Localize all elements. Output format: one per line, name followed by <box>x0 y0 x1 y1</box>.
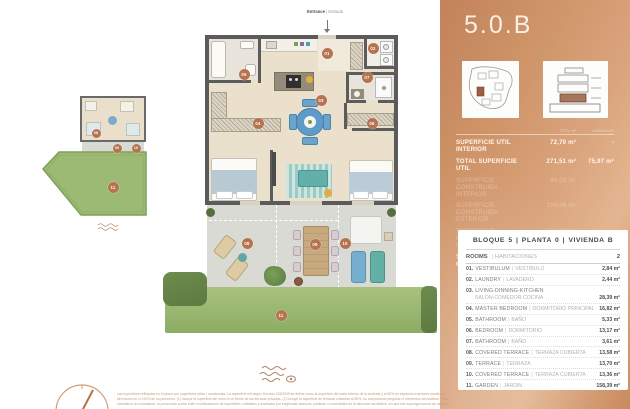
sun-lounger <box>351 251 366 283</box>
room-marker-06: 06 <box>367 118 378 129</box>
rooms-card: BLOQUE 5 | PLANTA 0 | VIVIENDA B ROOMS |… <box>458 230 628 390</box>
wall-segment <box>364 39 367 69</box>
surface-total: 271,51 m² <box>526 158 576 172</box>
dining-chair <box>323 114 331 130</box>
room-row: 05. BATHROOM | BAÑO 5,33 m² <box>466 315 620 326</box>
surface-label: SUPERFICIE CONSTRUIDA INTERIOR <box>456 177 526 198</box>
surface-row: SUPERFICIE UTIL INTERIOR 72,70 m² - <box>456 139 614 153</box>
rooms-count: 2 <box>617 254 620 260</box>
room-row: 03. LIVING-DINNING-KITCHEN <box>466 286 620 294</box>
surface-table-divider <box>456 134 614 135</box>
pillow <box>216 191 233 199</box>
mini-room-marker-11: 11 <box>108 182 119 193</box>
room-marker-11: 11 <box>276 310 287 321</box>
entrance-door-gap <box>318 35 336 39</box>
card-divider <box>466 249 620 250</box>
surface-vivienda: - <box>576 177 614 198</box>
outdoor-chair <box>293 262 301 272</box>
surface-label: SUPERFICIE UTIL INTERIOR <box>456 139 526 153</box>
shrub <box>206 208 215 217</box>
room-row: 11. GARDEN | JARDIN 158,39 m² <box>466 380 620 390</box>
wall-segment <box>378 100 394 103</box>
outdoor-chair <box>331 230 339 240</box>
room-row: 09. TERRACE | TERRAZA 13,70 m² <box>466 358 620 369</box>
outdoor-chair <box>331 262 339 272</box>
room-marker-04: 04 <box>253 118 264 129</box>
outdoor-chair <box>331 246 339 256</box>
mini-furniture <box>120 101 134 112</box>
entrance-arrow-icon <box>324 29 330 33</box>
rooms-header-en: ROOMS <box>466 254 488 260</box>
surface-table-header: TOTAL M² VIVIENDA M² <box>456 129 614 133</box>
pillow <box>236 191 253 199</box>
room-marker-09: 09 <box>310 239 321 250</box>
pouf <box>324 189 332 197</box>
cooktop-burner <box>289 78 292 81</box>
bathroom-sink <box>354 91 360 97</box>
surface-col1-header: TOTAL M² <box>526 129 576 133</box>
shower-drain-icon <box>382 86 386 90</box>
tv-unit <box>272 152 276 186</box>
room-row: 02. LAUNDRY | LAVADERO 2,44 m² <box>466 275 620 286</box>
mini-table <box>108 116 117 125</box>
info-panel: 5.0.B <box>440 0 630 409</box>
surface-row: SUPERFICIE CONSTRUIDA EXTERIOR 100,06 m²… <box>456 202 614 223</box>
side-table <box>238 253 247 262</box>
mini-room-marker-09: 09 <box>113 144 122 153</box>
entrance-arrow-shaft <box>327 20 328 29</box>
table-centerpiece <box>308 120 312 124</box>
side-table <box>384 232 393 241</box>
entrance-label-es: Entrada <box>328 9 343 14</box>
section-diagram-thumbnail <box>543 61 608 118</box>
washer-drum-icon <box>383 44 389 50</box>
master-wardrobe <box>211 118 281 132</box>
surface-col2-header: VIVIENDA M² <box>576 129 614 133</box>
plant <box>264 266 286 286</box>
fruit-bowl <box>306 76 313 83</box>
cooktop-burner <box>295 78 298 81</box>
room-marker-08: 08 <box>242 238 253 249</box>
surface-label: TOTAL SUPERFICIE UTIL <box>456 158 526 172</box>
surface-total: 100,06 m² <box>526 202 576 223</box>
unit-location-title: BLOQUE 5 | PLANTA 0 | VIVIENDA B <box>466 237 620 244</box>
sofa <box>298 170 328 187</box>
room-row: 08. COVERED TERRACE | TERRAZA CUBIERTA 1… <box>466 347 620 358</box>
room-row: 07. BATHROOM | BAÑO 3,61 m² <box>466 337 620 348</box>
room-marker-05: 05 <box>239 69 250 80</box>
outdoor-chair <box>293 230 301 240</box>
surface-row: TOTAL SUPERFICIE UTIL 271,51 m² 75,97 m² <box>456 158 614 172</box>
hedge <box>421 286 437 333</box>
dining-chair <box>289 114 297 130</box>
plant-pot <box>294 277 303 286</box>
room-row-continuation: SALON-COMEDOR-COCINA 28,39 m² <box>466 294 620 304</box>
outdoor-chair <box>293 246 301 256</box>
dryer-drum-icon <box>383 57 389 63</box>
surface-vivienda: - <box>576 139 614 153</box>
brochure-page: Entrance | Entrada 08 09 10 11 <box>0 0 630 409</box>
room-marker-07: 07 <box>362 72 373 83</box>
pillow <box>372 191 388 199</box>
site-plan-sketch <box>462 61 519 118</box>
room-row: 01. VESTIBULUM | VESTIBULO 2,84 m² <box>466 264 620 275</box>
site-plan-thumbnail <box>462 61 519 118</box>
room-row: 06. BEDROOM | DORMITORIO 13,17 m² <box>466 326 620 337</box>
dining-chair <box>302 137 318 145</box>
kitchen-decor <box>300 42 304 46</box>
disclaimer-line: orientativo no contractual. La promocion… <box>117 402 449 407</box>
room-row: 10. COVERED TERRACE | TERRAZA CUBIERTA 1… <box>466 369 620 380</box>
wall-segment <box>346 75 349 102</box>
bathtub <box>211 41 226 78</box>
mini-room-marker-10: 10 <box>132 144 141 153</box>
kitchen-decor <box>306 42 310 46</box>
room-marker-03: 03 <box>316 95 327 106</box>
unit-code: 5.0.B <box>464 11 532 40</box>
compass-logo <box>48 383 116 409</box>
section-sketch <box>543 61 608 118</box>
outdoor-dining-table <box>303 226 329 276</box>
rooms-header-sep: | <box>492 254 493 260</box>
wall-segment <box>364 66 394 69</box>
mini-plan-building <box>80 96 146 142</box>
daybed <box>350 216 382 244</box>
room-marker-02: 02 <box>368 43 379 54</box>
rooms-table-header: ROOMS | HABITACIONES 2 <box>466 252 620 264</box>
room-row: 04. MASTER BEDROOM | DORMITORIO PRINCIPA… <box>466 304 620 315</box>
mini-plan-garden <box>42 150 148 217</box>
mini-bed <box>126 123 140 136</box>
surface-total: 94,03 m² <box>526 177 576 198</box>
rooms-header-es: HABITACIONES <box>495 254 537 260</box>
mini-room-marker-08: 08 <box>92 129 101 138</box>
sea-view-waves-icon <box>258 363 298 387</box>
wall-segment <box>209 80 251 83</box>
bathroom-sink <box>240 41 254 49</box>
pillow <box>353 191 369 199</box>
surface-total: 72,70 m² <box>526 139 576 153</box>
kitchen-decor <box>294 42 298 46</box>
terrace-divider <box>209 220 338 221</box>
closet <box>350 42 363 70</box>
shrub <box>387 208 396 217</box>
surface-label: SUPERFICIE CONSTRUIDA EXTERIOR <box>456 202 526 223</box>
hedge <box>163 272 207 306</box>
entrance-label-sep: | <box>326 9 327 14</box>
kitchen-sink <box>266 41 277 49</box>
room-marker-10: 10 <box>340 238 351 249</box>
mini-sea-waves-icon <box>97 222 119 232</box>
sun-lounger <box>370 251 385 283</box>
mini-furniture <box>85 101 97 111</box>
entrance-label-en: Entrance <box>307 9 325 14</box>
surface-vivienda: 75,97 m² <box>576 158 614 172</box>
room-marker-01: 01 <box>322 48 333 59</box>
cooktop <box>286 75 301 88</box>
surface-vivienda: - <box>576 202 614 223</box>
wall-segment <box>346 100 366 103</box>
surface-row: SUPERFICIE CONSTRUIDA INTERIOR 94,03 m² … <box>456 177 614 198</box>
entrance-label: Entrance | Entrada <box>293 9 357 14</box>
